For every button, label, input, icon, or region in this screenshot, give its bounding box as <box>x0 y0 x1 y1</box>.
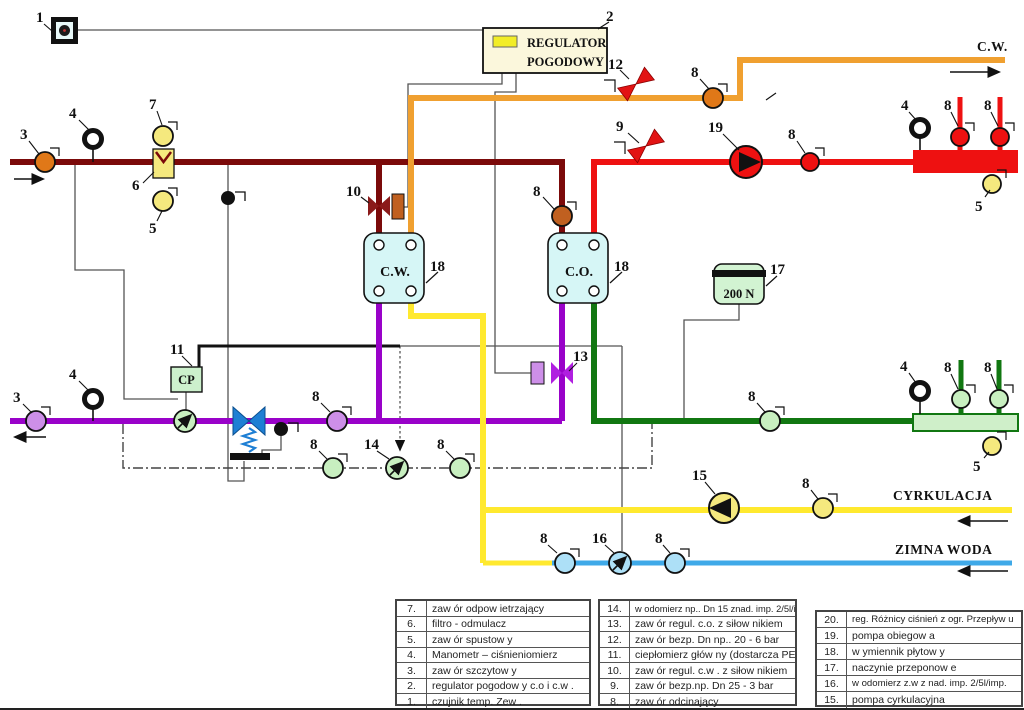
manometer-4-co-return <box>912 383 929 400</box>
legend-row: 19.pompa obiegow a <box>817 628 1021 644</box>
valve-8-boundary1 <box>323 458 343 478</box>
port <box>557 240 567 250</box>
valve-7-air-vent <box>153 126 173 146</box>
callout-5: 5 <box>975 199 983 215</box>
port <box>374 240 384 250</box>
callout-18: 18 <box>430 259 445 275</box>
control-valve-10-cw <box>368 194 404 219</box>
valve-5-drain-manifold-return <box>983 437 1001 455</box>
callout-2: 2 <box>606 9 614 25</box>
legend-row: 14.w odomierz np.. Dn 15 znad. imp. 2/5l… <box>600 601 795 617</box>
manometer-4-supply <box>85 131 102 148</box>
callout-8: 8 <box>655 531 663 547</box>
legend-row: 1.czujnik temp. Zew . <box>397 694 589 709</box>
regulator-label-line1: REGULATOR <box>527 36 607 50</box>
port <box>589 240 599 250</box>
legend-table-right: 20.reg. Różnicy ciśnień z ogr. Przepływ … <box>815 610 1023 707</box>
callout-8: 8 <box>437 437 445 453</box>
legend-table-left: 7.zaw ór odpow ietrzający 6.filtro - odm… <box>395 599 591 706</box>
callout-13: 13 <box>573 349 588 365</box>
callout-5: 5 <box>973 459 981 475</box>
callout-15: 15 <box>692 468 707 484</box>
callout-4: 4 <box>901 98 909 114</box>
callout-3: 3 <box>20 127 28 143</box>
exchanger-co: C.O. <box>548 233 622 303</box>
valve-5-drain-manifold-supply <box>983 175 1001 193</box>
callout-10: 10 <box>346 184 361 200</box>
legend-row: 16.w odomierz z.w z nad. imp. 2/5l/imp. <box>817 676 1021 692</box>
exchanger-cw-label: C.W. <box>380 265 410 280</box>
callout-12: 12 <box>608 57 623 73</box>
legend-row: 9.zaw ór bezp.np. Dn 25 - 3 bar <box>600 679 795 695</box>
manometer-4-return <box>85 391 102 408</box>
callout-4: 4 <box>900 359 908 375</box>
callout-6: 6 <box>132 178 140 194</box>
dp-impulse-line-high <box>228 162 244 481</box>
pipe-district-supply <box>10 162 562 237</box>
callout-8: 8 <box>802 476 810 492</box>
legend-row: 3.zaw ór szczytow y <box>397 663 589 679</box>
callout-8: 8 <box>540 531 548 547</box>
valve-3-return <box>26 411 46 431</box>
legend-row: 17.naczynie przeponow e <box>817 660 1021 676</box>
callout-7: 7 <box>149 97 157 113</box>
valve-8-cold2 <box>665 553 685 573</box>
port <box>406 240 416 250</box>
callout-8: 8 <box>944 360 952 376</box>
callout-17: 17 <box>770 262 786 278</box>
valve-8-cold1 <box>555 553 575 573</box>
heat-meter-cable <box>199 346 400 367</box>
safety-valve-9-bracket <box>614 142 625 154</box>
callout-16: 16 <box>592 531 608 547</box>
legend-row: 15.pompa cyrkulacyjna <box>817 692 1021 708</box>
wire-to-valve10-actuator <box>404 73 502 207</box>
callout-8: 8 <box>310 437 318 453</box>
co-return-manifold <box>913 414 1018 431</box>
weather-regulator: REGULATOR POGODOWY <box>483 28 607 73</box>
legend-row: 12.zaw ór bezp. Dn np.. 20 - 6 bar <box>600 632 795 648</box>
port <box>557 286 567 296</box>
port <box>406 286 416 296</box>
callout-5: 5 <box>149 221 157 237</box>
expansion-vessel: 200 N <box>712 264 777 304</box>
valve-8-co-supply-in <box>552 206 572 226</box>
callout-19: 19 <box>708 120 723 136</box>
callout-8: 8 <box>944 98 952 114</box>
legend-row: 2.regulator pogodow y c.o i c.w . <box>397 679 589 695</box>
valve-8-riser2 <box>991 128 1009 146</box>
callout-8: 8 <box>533 184 541 200</box>
legend-row: 11.ciepłomierz głów ny (dostarcza PEC) <box>600 648 795 664</box>
pressure-tap-return <box>274 422 298 436</box>
callout-3: 3 <box>13 390 21 406</box>
callout-8: 8 <box>984 98 992 114</box>
valve-3-supply <box>35 152 55 172</box>
legend-row: 8.zaw ór odcinający <box>600 694 795 709</box>
callout-8: 8 <box>788 127 796 143</box>
pipe-cold-feed-riser <box>411 303 483 563</box>
valve-8-circulation <box>813 498 833 518</box>
callout-14: 14 <box>364 437 380 453</box>
label-cw-out: C.W. <box>977 39 1008 54</box>
legend-row: 4.Manometr – ciśnieniomierz <box>397 648 589 664</box>
expansion-vessel-line <box>684 303 739 418</box>
manometer-4-co-supply <box>912 120 929 137</box>
callout-1: 1 <box>36 10 44 26</box>
safety-valve-12-bracket <box>604 80 615 92</box>
valve-8-co-return <box>760 411 780 431</box>
legend-row: 20.reg. Różnicy ciśnień z ogr. Przepływ … <box>817 612 1021 628</box>
legend-table-middle: 14.w odomierz np.. Dn 15 znad. imp. 2/5l… <box>598 599 797 706</box>
leader-lines <box>23 22 998 553</box>
callout-9: 9 <box>616 119 624 135</box>
legend-row: 10.zaw ór regul. c.w . z siłow nikiem <box>600 663 795 679</box>
label-circulation: CYRKULACJA <box>893 488 993 503</box>
label-cold-water: ZIMNA WODA <box>895 542 992 557</box>
callouts: 1 2 12 9 19 8 8 4 8 8 5 3 4 7 6 5 10 8 1… <box>13 9 998 553</box>
callout-8: 8 <box>312 389 320 405</box>
vessel-capacity-label: 200 N <box>724 287 755 301</box>
meters <box>174 410 631 574</box>
valve-8-boundary2 <box>450 458 470 478</box>
callout-8: 8 <box>984 360 992 376</box>
legend-row: 7.zaw ór odpow ietrzający <box>397 601 589 617</box>
valve-8-return <box>327 411 347 431</box>
control-valve-13-co <box>531 362 573 384</box>
pump-19-circulating <box>730 146 762 178</box>
exchanger-cw: C.W. <box>364 233 438 303</box>
callout-8: 8 <box>691 65 699 81</box>
wire-to-valve13-actuator <box>495 73 531 373</box>
valve-8-riser1 <box>951 128 969 146</box>
safety-valve-9 <box>628 129 665 163</box>
valve-8-return-riser1 <box>952 390 970 408</box>
diff-pressure-regulator-20 <box>230 407 270 460</box>
legend-row: 13.zaw ór regul. c.o. z siłow nikiem <box>600 617 795 633</box>
callout-4: 4 <box>69 367 77 383</box>
callout-18: 18 <box>614 259 629 275</box>
valve-8-co-supply <box>801 153 819 171</box>
valve-8-dhw <box>703 88 723 108</box>
callout-11: 11 <box>170 342 184 358</box>
pipe-dhw-out <box>411 60 1005 237</box>
valve-5-drain-filter <box>153 191 173 211</box>
legend-row: 6.filtro - odmulacz <box>397 617 589 633</box>
port <box>589 286 599 296</box>
spring <box>243 428 255 452</box>
legend-row: 18.w ymiennik płytow y <box>817 644 1021 660</box>
heating-substation-schematic: C.W. C.O. REGULATOR POGODOWY CP 200 N <box>0 0 1024 710</box>
exchanger-co-label: C.O. <box>565 265 593 280</box>
port <box>374 286 384 296</box>
valve-8-return-riser2 <box>990 390 1008 408</box>
heat-meter-cp: CP <box>171 367 202 392</box>
legend-row: 5.zaw ór spustow y <box>397 632 589 648</box>
callout-8: 8 <box>748 389 756 405</box>
pressure-tap-supply <box>221 191 245 205</box>
regulator-label-line2: POGODOWY <box>527 55 604 69</box>
filter-dirt-separator-6 <box>153 149 174 178</box>
callout-4: 4 <box>69 106 77 122</box>
outdoor-temp-sensor <box>51 17 78 44</box>
pump-15-dhw-circulation <box>709 493 739 523</box>
heat-meter-label: CP <box>178 373 195 387</box>
